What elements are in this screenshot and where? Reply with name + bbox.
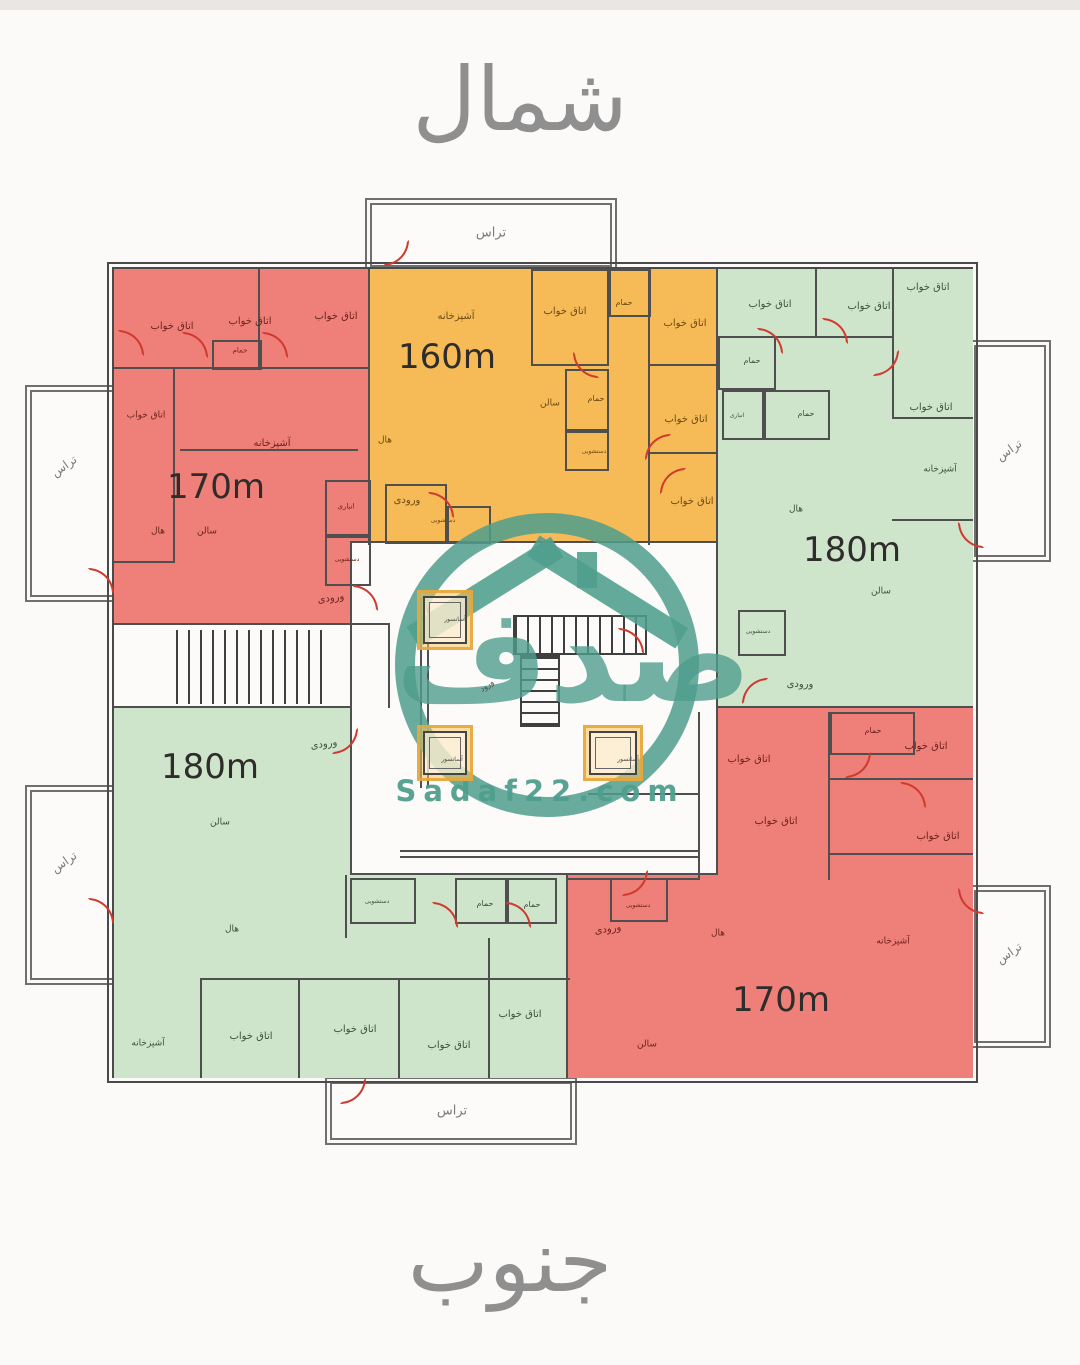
room-label: اتاق خواب	[127, 412, 166, 421]
room-label: اتاق خواب	[228, 317, 271, 327]
room-label: ورودی	[310, 738, 338, 752]
room-label: آشپزخانه	[876, 938, 909, 947]
room-label: اتاق خواب	[727, 755, 770, 765]
room-label: دستشویی	[335, 557, 360, 563]
room-label: حمام	[744, 357, 761, 365]
room-label: حمام	[477, 900, 494, 908]
room-label: تراس	[437, 1105, 467, 1118]
area-size-label: 170m	[732, 983, 830, 1017]
room-label: اتاق خواب	[664, 415, 707, 425]
room-label: حمام	[233, 348, 248, 355]
room-label: تراس	[476, 227, 506, 240]
room-label: آشپزخانه	[131, 1040, 164, 1049]
room-label: انباری	[730, 413, 745, 419]
room-label: اتاق خواب	[314, 312, 357, 322]
room-label: اتاق خواب	[229, 1032, 272, 1042]
room-label: حمام	[616, 299, 633, 307]
area-size-label: 180m	[803, 533, 901, 567]
room-label: دستشویی	[582, 449, 607, 455]
room-label: هال	[789, 506, 803, 515]
room-label: اتاق خواب	[904, 742, 947, 752]
room-label: ورودی	[394, 496, 421, 506]
room-label: دستشویی	[746, 629, 771, 635]
room-label: ورودی	[787, 680, 814, 690]
room-label: سالن	[871, 588, 891, 597]
room-label: ورودی	[594, 923, 622, 937]
room-label: تراس	[994, 940, 1024, 966]
room-label: اتاق خواب	[333, 1025, 376, 1035]
room-label: تراس	[994, 437, 1024, 463]
room-label: هال	[225, 926, 239, 935]
room-label: تراس	[49, 849, 79, 875]
room-label: سالن	[540, 400, 560, 409]
room-label: حمام	[524, 901, 541, 909]
room-label: سالن	[637, 1041, 657, 1050]
room-label: اتاق خواب	[754, 817, 797, 827]
room-label: هال	[151, 528, 165, 537]
room-label: هال	[711, 930, 725, 939]
room-label: اتاق خواب	[916, 832, 959, 842]
room-label: انباری	[338, 504, 355, 511]
room-label: اتاق خواب	[909, 403, 952, 413]
room-label: ورود	[478, 678, 495, 693]
area-size-label: 160m	[398, 340, 496, 374]
room-label: آسانسور	[444, 617, 466, 623]
area-size-label: 180m	[161, 750, 259, 784]
room-label: آسانسور	[441, 757, 463, 763]
room-label: اتاق خواب	[748, 300, 791, 310]
room-label: اتاق خواب	[663, 319, 706, 329]
area-size-label: 170m	[167, 470, 265, 504]
room-label: آسانسور	[617, 757, 639, 763]
room-label: دستشویی	[365, 899, 390, 905]
room-label: اتاق خواب	[427, 1041, 470, 1051]
room-label: آشپزخانه	[923, 466, 956, 475]
room-label: اتاق خواب	[906, 283, 949, 293]
room-label: ورودی	[317, 592, 345, 606]
room-label: اتاق خواب	[150, 322, 193, 332]
room-labels-layer: تراستراستراستراستراستراساتاق خواباتاق خو…	[0, 0, 1080, 1365]
room-label: حمام	[865, 727, 882, 735]
room-label: حمام	[588, 395, 605, 403]
room-label: هال	[378, 437, 392, 446]
room-label: اتاق خواب	[670, 497, 713, 507]
room-label: اتاق خواب	[498, 1010, 541, 1020]
room-label: تراس	[49, 453, 79, 479]
room-label: سالن	[197, 528, 217, 537]
room-label: حمام	[798, 410, 815, 418]
room-label: دستشویی	[431, 518, 456, 524]
room-label: آشپزخانه	[253, 439, 290, 449]
room-label: سالن	[210, 819, 230, 828]
room-label: آشپزخانه	[437, 312, 474, 322]
room-label: اتاق خواب	[543, 307, 586, 317]
room-label: دستشویی	[626, 903, 651, 909]
room-label: اتاق خواب	[847, 302, 890, 312]
